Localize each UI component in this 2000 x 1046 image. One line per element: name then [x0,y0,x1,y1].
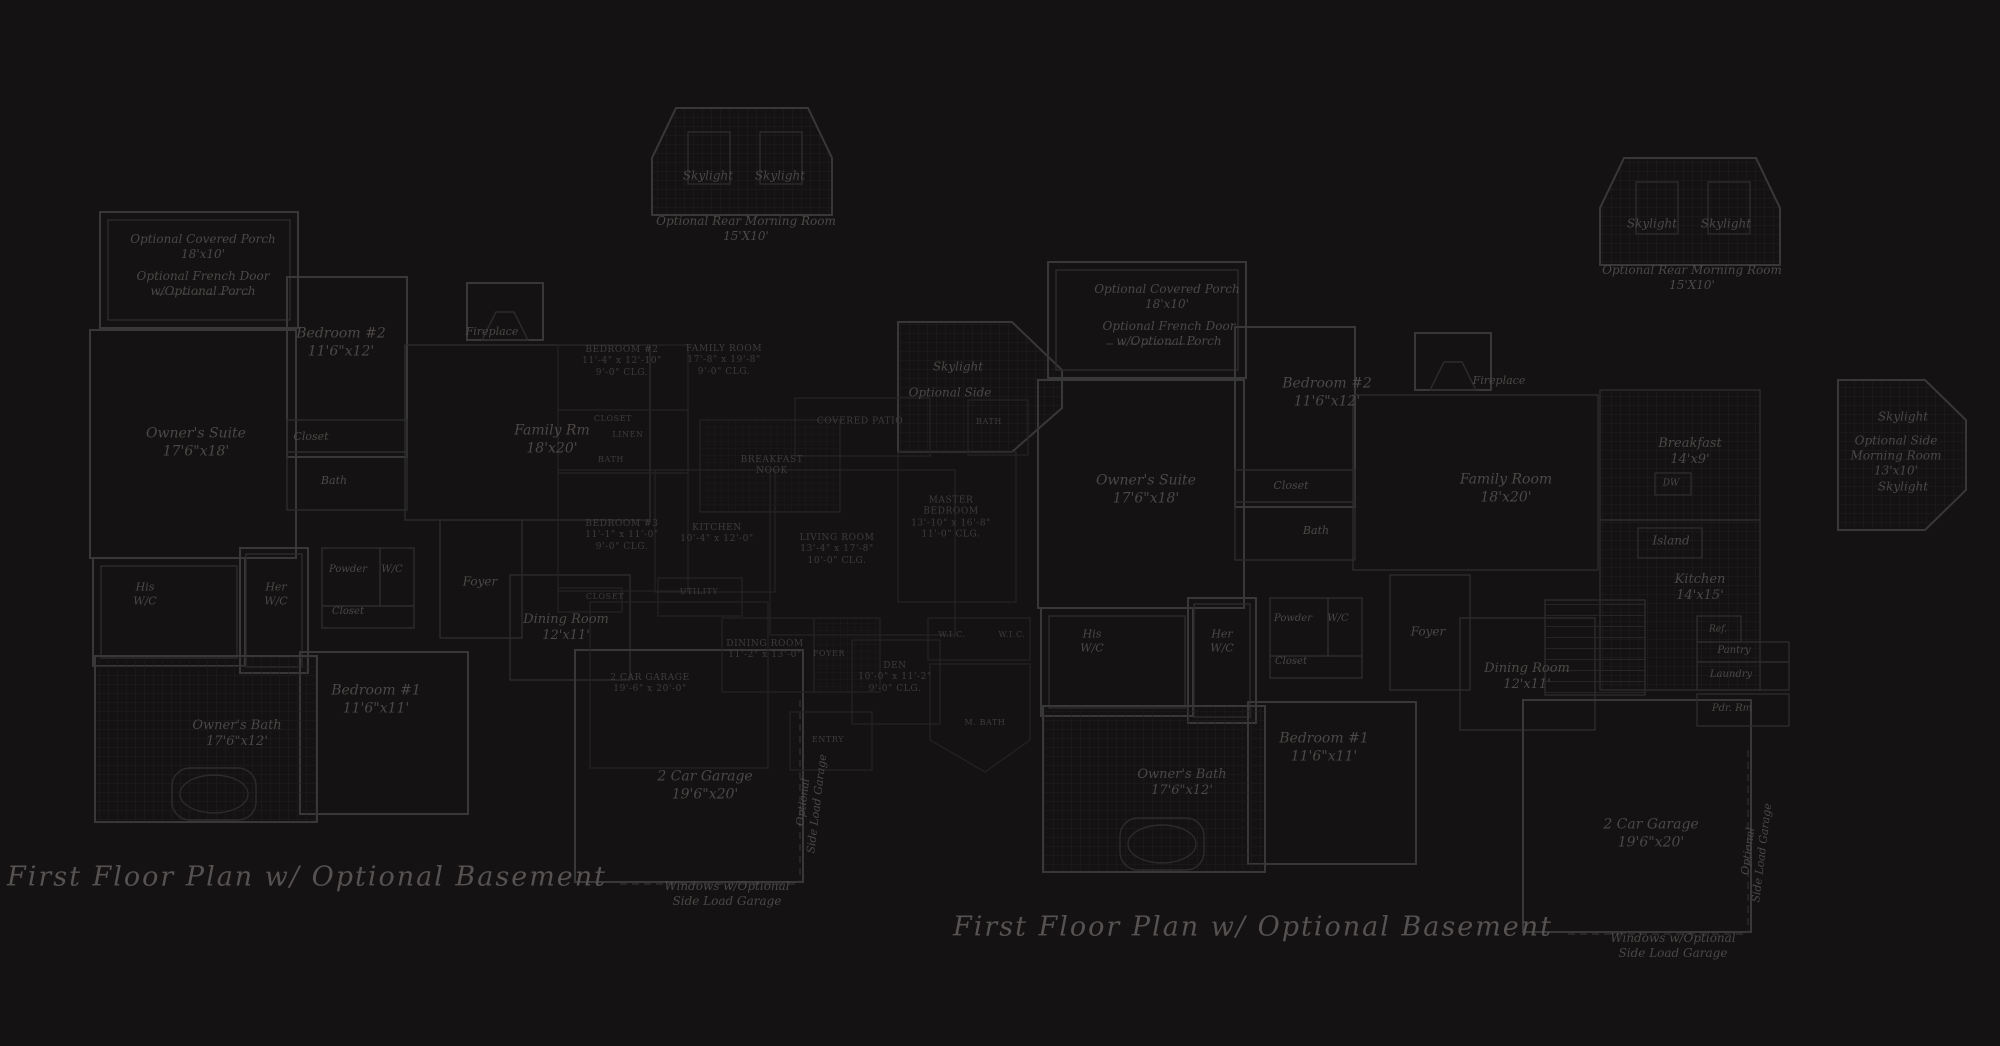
wall-segment [322,548,380,606]
room-label-line: 14'x9' [1658,452,1722,468]
room-label-line: CLOSET [594,414,632,424]
room-label-line: 12'x11' [1484,677,1570,693]
room-label-line: FAMILY ROOM [686,344,762,355]
room-label: HerW/C [264,580,287,608]
wall-segment [246,554,302,667]
room-label: CLOSET [594,414,632,424]
room-label: BATH [598,455,624,465]
room-label-line: DEN [858,661,931,672]
room-label-line: 9'-0" CLG. [858,684,931,695]
wall-segment [1235,502,1355,560]
room-label-line: 14'x15' [1675,588,1726,604]
room-label: Closet [1273,479,1308,493]
room-label: UTILITY [680,587,719,597]
room-label-line: Fireplace [1473,374,1526,388]
wall-segment [1194,604,1250,717]
room-label: Closet [1275,656,1307,669]
room-label: Bath [321,474,347,488]
room-label: Windows w/OptionalSide Load Garage [1610,931,1735,961]
room-label-line: Bath [1303,524,1329,538]
room-label-line: 10'-0" CLG. [800,556,875,567]
room-label-line: W/C [1210,641,1233,655]
wall-segment [1188,598,1256,723]
room-label-line: BEDROOM [911,507,991,518]
room-label-line: Powder [329,564,367,577]
room-label-line: Fireplace [466,325,519,339]
wall-geometry-group [90,108,1966,934]
wall-segment [652,108,832,215]
wall-segment [93,558,245,666]
room-label: Optional Rear Morning Room15'X10' [1602,263,1782,293]
room-label: HisW/C [133,580,156,608]
room-label: CLOSET [586,592,624,602]
room-label-line: Pantry [1717,645,1750,658]
room-label-line: His [133,580,156,594]
room-label-line: UTILITY [680,587,719,597]
room-label-line: Optional Side [1851,434,1942,449]
room-label-line: 9'-0" CLG. [585,542,658,553]
room-label: 2 Car Garage19'6"x20' [1603,817,1698,852]
room-label: W.I.C. [938,630,965,640]
room-label: BEDROOM #211'-4" x 12'-10"9'-0" CLG. [582,345,662,379]
room-label-line: MASTER [911,496,991,507]
room-label-line: Pdr. Rm [1712,703,1752,716]
room-label: Bedroom #111'6"x11' [1279,731,1368,766]
room-label-line: Optional Side [909,386,992,401]
wall-segment [1600,158,1780,265]
room-label: KITCHEN10'-4" x 12'-0" [680,523,753,546]
room-label: BREAKFASTNOOK [741,455,804,478]
room-label: Optional French Doorw/Optional Porch [137,269,270,299]
room-label-line: Optional French Door [137,269,270,284]
wall-segment [1270,598,1328,656]
room-label-line: Family Rm [514,423,590,441]
room-label: Kitchen14'x15' [1675,572,1726,605]
room-label-line: 9'-0" CLG. [582,368,662,379]
room-label-line: CLOSET [586,592,624,602]
wall-segment [240,548,308,673]
room-label: Optional Covered Porch18'x10' [1094,282,1240,312]
room-label: Dining Room12'x11' [523,612,609,645]
room-label: Owner's Suite17'6"x18' [146,426,246,461]
room-label: Skylight [933,360,983,375]
room-label-line: Bedroom #1 [1279,731,1368,749]
room-label: Fireplace [1473,374,1526,388]
room-label-line: 19'6"x20' [657,786,752,804]
room-label-line: Dining Room [523,612,609,628]
room-label-line: Her [264,580,287,594]
room-label-line: 17'-8" x 19'-8" [686,355,762,366]
room-label-line: 19'6"x20' [1603,834,1698,852]
room-label-line: Bedroom #1 [331,683,420,701]
room-label-line: 17'6"x18' [1096,490,1196,508]
room-label: Optional SideMorning Room13'x10' [1851,434,1942,479]
room-label-line: BREAKFAST [741,455,804,466]
room-label-line: Closet [332,606,364,619]
room-label-line: W.I.C. [998,630,1025,640]
room-label: Owner's Suite17'6"x18' [1096,473,1196,508]
room-label-line: M. BATH [964,718,1005,728]
room-label-line: Closet [1275,656,1307,669]
room-label-line: BATH [976,417,1002,427]
room-label: Foyer [463,575,498,590]
room-label-line: 11'6"x12' [1282,393,1371,411]
room-label: BATH [976,417,1002,427]
room-label-line: KITCHEN [680,523,753,534]
room-label-line: 18'x10' [130,247,276,262]
room-label-line: Foyer [1411,625,1446,640]
room-label-line: 17'6"x12' [1137,783,1226,799]
room-label-line: w/Optional Porch [1103,334,1236,349]
room-label-line: Side Load Garage [664,894,789,909]
wall-segment [101,566,237,658]
room-label-line: COVERED PATIO [817,416,904,427]
room-label: Skylight [1701,217,1751,232]
room-label-line: 11'-1" x 11'-0" [585,530,658,541]
room-label: Powder [329,564,367,577]
room-label-line: Kitchen [1675,572,1726,588]
room-label: Ref. [1709,624,1727,635]
room-label: Skylight [755,169,805,184]
room-label-line: Side Load Garage [1610,946,1735,961]
room-label-line: 2 Car Garage [1603,817,1698,835]
room-label: DEN10'-0" x 11'-2"9'-0" CLG. [858,661,931,695]
room-label: Foyer [1411,625,1446,640]
room-label-line: 2 Car Garage [657,769,752,787]
room-label: Bath [1303,524,1329,538]
wall-segment [1248,702,1416,864]
room-label-line: Skylight [683,169,733,184]
room-label: DW [1663,478,1679,489]
room-label: Family Room18'x20' [1460,472,1552,507]
room-label-line: Island [1652,534,1689,549]
room-label-line: Skylight [1878,410,1928,425]
room-label-line: W/C [1080,641,1103,655]
room-label-line: 13'-4" x 17'-8" [800,544,875,555]
room-label-line: Dining Room [1484,661,1570,677]
room-label-line: 15'X10' [1602,278,1782,293]
room-label: Owner's Bath17'6"x12' [192,718,281,751]
room-label: Skylight [1878,480,1928,495]
room-label-line: Powder [1274,613,1312,626]
wall-segment [300,652,468,814]
room-label-line: 18'x20' [1460,489,1552,507]
room-label: Skylight [1627,217,1677,232]
room-label: Bedroom #111'6"x11' [331,683,420,718]
room-label-line: Her [1210,627,1233,641]
room-label-line: Windows w/Optional [664,879,789,894]
wall-segment [1041,608,1193,716]
room-label: Skylight [1878,410,1928,425]
room-label-line: W/C [381,564,402,577]
room-label-line: Bath [321,474,347,488]
wall-segment [380,548,414,606]
wall-segment [1049,616,1185,708]
room-label: Dining Room12'x11' [1484,661,1570,694]
room-label-line: Owner's Bath [1137,767,1226,783]
room-label-line: LINEN [612,430,643,440]
room-label-line: W/C [1327,613,1348,626]
room-label-line: 15'X10' [656,229,836,244]
right-plan-caption: First Floor Plan w/ Optional Basement [953,912,1553,943]
room-label: Laundry [1710,669,1752,682]
room-label-line: BATH [598,455,624,465]
room-label-line: His [1080,627,1103,641]
room-label-line: Windows w/Optional [1610,931,1735,946]
room-label-line: Owner's Suite [146,426,246,444]
room-label: W/C [381,564,402,577]
room-label-line: Skylight [1878,480,1928,495]
room-label-line: Closet [293,430,328,444]
room-label: W.I.C. [998,630,1025,640]
room-label-line: 19'-6" x 20'-0" [610,684,690,695]
room-label: HisW/C [1080,627,1103,655]
room-label: FAMILY ROOM17'-8" x 19'-8"9'-0" CLG. [686,344,762,378]
room-label-line: 17'6"x18' [146,443,246,461]
room-label-line: 17'6"x12' [192,734,281,750]
room-label-line: W.I.C. [938,630,965,640]
room-label: Optional Side [909,386,992,401]
room-label: 2 CAR GARAGE19'-6" x 20'-0" [610,673,690,696]
room-label: ENTRY [812,735,844,745]
room-label: Optional Rear Morning Room15'X10' [656,214,836,244]
room-label-line: Laundry [1710,669,1752,682]
floor-plan-sheet: Optional Covered Porch18'x10'Optional Fr… [0,0,2000,1046]
room-label-line: 9'-0" CLG. [686,367,762,378]
room-label-line: 11'6"x11' [1279,748,1368,766]
room-label: Bedroom #211'6"x12' [296,326,385,361]
room-label-line: W/C [264,594,287,608]
room-label: COVERED PATIO [817,416,904,427]
room-label: Island [1652,534,1689,549]
room-label: DINING ROOM11'-2" x 13'-0" [726,639,803,662]
room-label-line: 18'x10' [1094,297,1240,312]
room-label: Owner's Bath17'6"x12' [1137,767,1226,800]
room-label: Optional French Doorw/Optional Porch [1103,319,1236,349]
room-label-line: Skylight [1627,217,1677,232]
room-label-line: BEDROOM #3 [585,519,658,530]
room-label: FOYER [813,649,845,659]
room-label: Pantry [1717,645,1750,658]
room-label: Windows w/OptionalSide Load Garage [664,879,789,909]
room-label-line: Optional Rear Morning Room [1602,263,1782,278]
room-label-line: 13'-10" x 16'-8" [911,518,991,529]
room-label: Powder [1274,613,1312,626]
room-label-line: Skylight [933,360,983,375]
room-label-line: 2 CAR GARAGE [610,673,690,684]
room-label-line: FOYER [813,649,845,659]
room-label-line: ENTRY [812,735,844,745]
room-label-line: DINING ROOM [726,639,803,650]
room-label-line: 11'6"x11' [331,700,420,718]
room-label-line: Skylight [1701,217,1751,232]
room-label-line: Breakfast [1658,436,1722,452]
room-label: 2 Car Garage19'6"x20' [657,769,752,804]
room-label: Optional Covered Porch18'x10' [130,232,276,262]
room-label-line: Bedroom #2 [1282,376,1371,394]
room-label-line: 11'6"x12' [296,343,385,361]
room-label: MASTERBEDROOM13'-10" x 16'-8"11'-0" CLG. [911,496,991,541]
room-label-line: Optional French Door [1103,319,1236,334]
room-label: BEDROOM #311'-1" x 11'-0"9'-0" CLG. [585,519,658,553]
room-label: LINEN [612,430,643,440]
room-label-line: 13'x10' [1851,464,1942,479]
room-label: Bedroom #211'6"x12' [1282,376,1371,411]
room-label-line: Ref. [1709,624,1727,635]
room-label-line: DW [1663,478,1679,489]
room-label-line: Optional Covered Porch [1094,282,1240,297]
room-label-line: 11'-2" x 13'-0" [726,650,803,661]
room-label-line: NOOK [741,466,804,477]
room-label-line: Foyer [463,575,498,590]
room-label: LIVING ROOM13'-4" x 17'-8"10'-0" CLG. [800,533,875,567]
room-label-line: W/C [133,594,156,608]
room-label: Closet [293,430,328,444]
room-label-line: 10'-0" x 11'-2" [858,672,931,683]
room-label-line: 18'x20' [514,440,590,458]
wall-segment [1328,598,1362,656]
room-label-line: Optional Covered Porch [130,232,276,247]
wall-segment [1430,362,1476,390]
room-label: Closet [332,606,364,619]
room-label: Family Rm18'x20' [514,423,590,458]
room-label-line: Bedroom #2 [296,326,385,344]
left-plan-caption: First Floor Plan w/ Optional Basement [7,862,607,893]
room-label-line: Family Room [1460,472,1552,490]
room-label-line: 10'-4" x 12'-0" [680,534,753,545]
room-label-line: Owner's Bath [192,718,281,734]
room-label-line: BEDROOM #2 [582,345,662,356]
room-label: M. BATH [964,718,1005,728]
room-label: Skylight [683,169,733,184]
room-label-line: Skylight [755,169,805,184]
room-label-line: 11'-4" x 12'-10" [582,356,662,367]
room-label-line: Owner's Suite [1096,473,1196,491]
room-label: Breakfast14'x9' [1658,436,1722,469]
room-label-line: 11'-0" CLG. [911,529,991,540]
room-label-line: LIVING ROOM [800,533,875,544]
room-label: Pdr. Rm [1712,703,1752,716]
room-label-line: Morning Room [1851,449,1942,464]
room-label-line: Closet [1273,479,1308,493]
room-label-line: Optional Rear Morning Room [656,214,836,229]
room-label-line: 12'x11' [523,628,609,644]
room-label: HerW/C [1210,627,1233,655]
room-label: W/C [1327,613,1348,626]
wall-segment [658,578,742,616]
room-label: Fireplace [466,325,519,339]
room-label-line: w/Optional Porch [137,284,270,299]
